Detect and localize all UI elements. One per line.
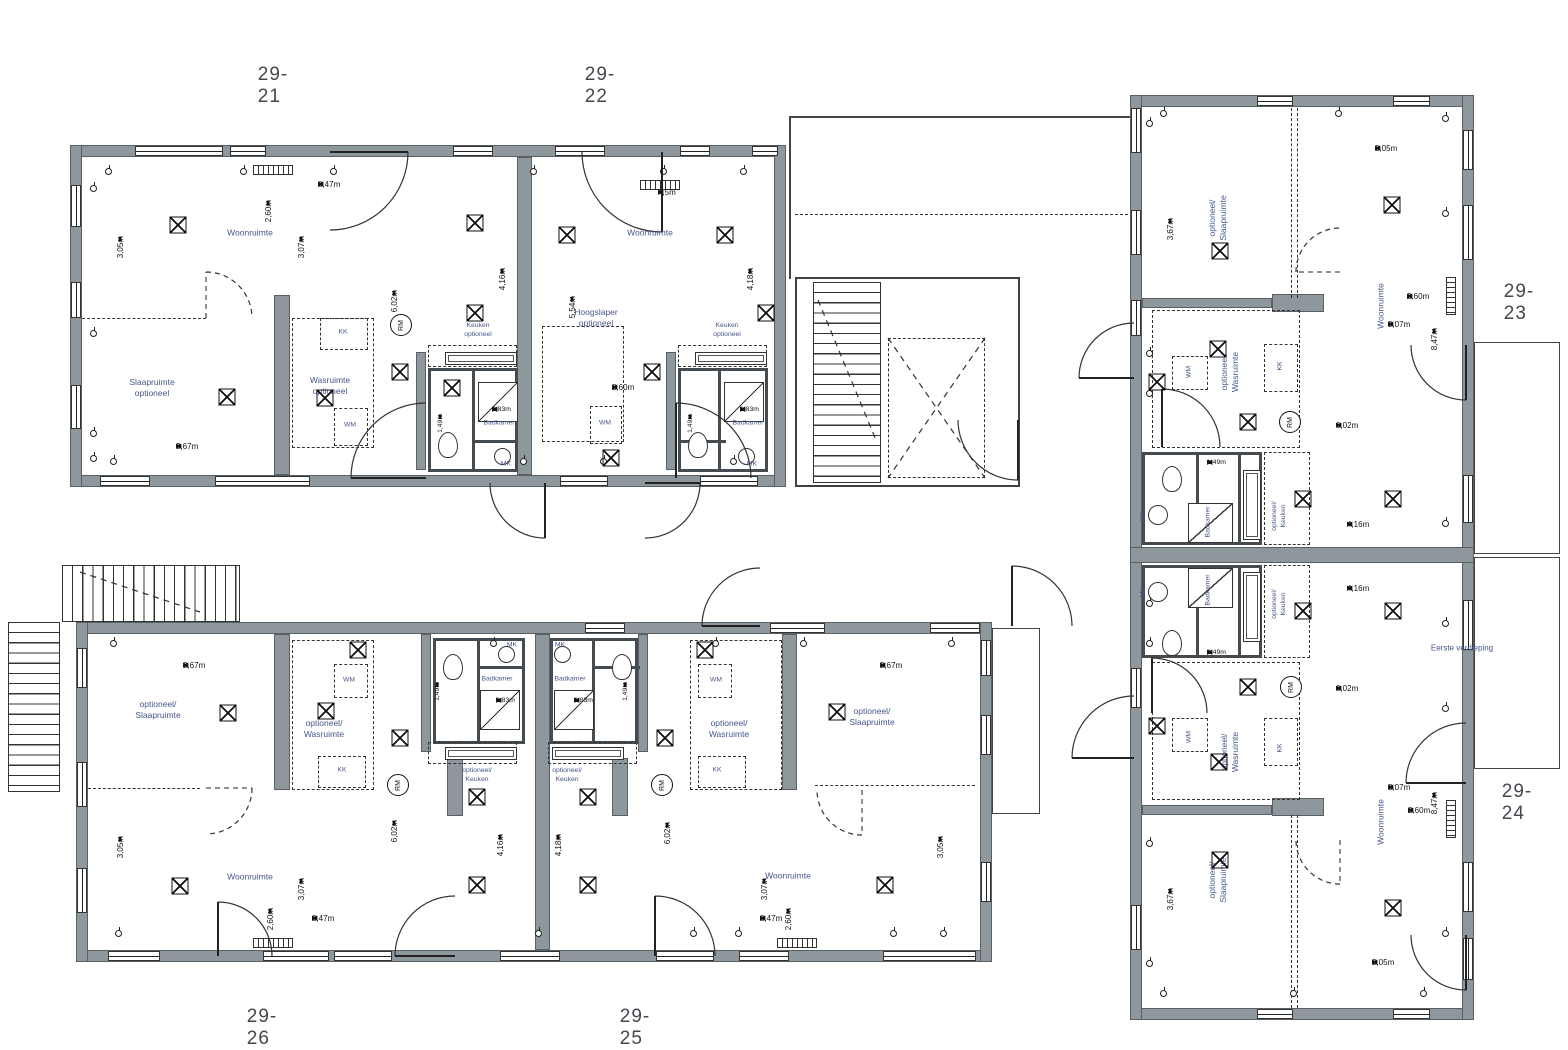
wall-light-icon: [90, 430, 97, 437]
smoke-detector-icon: RM: [387, 774, 409, 796]
dimension-arrow-icon: ▶: [1207, 459, 1212, 466]
wall-light-icon: [110, 458, 117, 465]
room-label: optioneel/ Slaapruimte: [135, 699, 180, 721]
window: [1131, 210, 1141, 255]
smoke-detector-label: RM: [658, 780, 665, 791]
shower-tray: [478, 382, 518, 422]
wall-light-icon: [940, 930, 947, 937]
ventilation-point-icon: [1385, 900, 1402, 917]
window: [1131, 905, 1141, 950]
wall: [782, 634, 797, 790]
wall-light-icon: [1442, 115, 1449, 122]
wall: [666, 352, 676, 470]
ventilation-point-icon: [219, 389, 236, 406]
wall-light-icon: [1290, 990, 1297, 997]
wall-light-icon: [1146, 390, 1153, 397]
dimension-arrow-icon: ▼: [937, 836, 944, 843]
dimension-arrow-icon: ▼: [555, 834, 562, 841]
room-label: optioneel/ Wasruimte: [304, 718, 344, 740]
kitchen-counter: [445, 747, 517, 760]
door-swing: [1406, 723, 1466, 783]
window: [1131, 300, 1141, 336]
ventilation-point-icon: [1211, 754, 1228, 771]
optional-wall-line: [1297, 108, 1298, 298]
wall: [70, 475, 786, 487]
dimension-arrow-icon: ▶: [658, 189, 663, 196]
window: [334, 951, 392, 961]
toilet: [1162, 630, 1182, 656]
dimension-arrow-icon: ▼: [747, 268, 754, 275]
room-label: MK: [1140, 587, 1149, 597]
ventilation-point-icon: [444, 380, 461, 397]
window: [981, 715, 991, 755]
room-label: MK: [747, 461, 757, 470]
window: [1463, 475, 1473, 523]
door-swing: [1012, 566, 1072, 626]
floor-plan-canvas: 29-21WoonruimteSlaapruimte optioneelWasr…: [0, 0, 1568, 1050]
optional-wall-line: [815, 785, 975, 786]
optional-door-swing: [1296, 840, 1340, 884]
dimension-arrow-icon: ▼: [391, 290, 398, 297]
dimension-arrow-icon: ▼: [785, 908, 792, 915]
optional-door-swing: [1296, 228, 1340, 272]
ventilation-point-icon: [1149, 374, 1166, 391]
window: [1131, 668, 1141, 708]
window: [585, 623, 625, 633]
room-label: Hoogslaper optioneel: [574, 307, 617, 329]
wall-light-icon: [1442, 520, 1449, 527]
ventilation-point-icon: [1295, 491, 1312, 508]
dimension-arrow-icon: ▶: [318, 181, 323, 188]
window: [883, 951, 976, 961]
window: [1463, 205, 1473, 260]
ventilation-point-icon: [392, 364, 409, 381]
door-swing: [702, 568, 760, 626]
wall-light-icon: [735, 930, 742, 937]
optional-wall-line: [1297, 815, 1298, 1008]
window: [1257, 1009, 1293, 1019]
partition-wall: [1238, 454, 1241, 543]
window: [215, 476, 310, 486]
kitchen-counter: [1243, 470, 1261, 540]
door-swing: [1079, 323, 1134, 378]
window: [981, 862, 991, 902]
partition-wall: [472, 370, 475, 470]
wall-light-icon: [1160, 110, 1167, 117]
dimension-arrow-icon: ▶: [1207, 649, 1212, 656]
radiator: [777, 938, 817, 948]
optional-wall-line: [795, 214, 1128, 215]
room-label: Keuken optioneel: [464, 322, 492, 340]
unit-number-label: 29-22: [585, 64, 615, 108]
dimension-arrow-icon: ▼: [569, 296, 576, 303]
optional-door-swing: [817, 790, 862, 835]
dimension-arrow-icon: ▶: [312, 915, 317, 922]
wall-light-icon: [1442, 930, 1449, 937]
ventilation-point-icon: [829, 704, 846, 721]
dimension-arrow-icon: ▼: [267, 908, 274, 915]
wall-light-icon: [535, 930, 542, 937]
wall: [612, 758, 628, 816]
dimension-arrow-icon: ▶: [496, 697, 501, 704]
wall-light-icon: [1146, 350, 1153, 357]
smoke-detector-icon: RM: [390, 314, 412, 336]
optional-wall-line: [88, 788, 200, 789]
ventilation-point-icon: [603, 450, 620, 467]
room-label: optioneel/ Keuken: [1271, 501, 1289, 530]
wall-light-icon: [90, 455, 97, 462]
window: [930, 623, 980, 633]
window: [1257, 96, 1293, 106]
window: [71, 185, 81, 227]
dimension-arrow-icon: ▼: [687, 414, 694, 421]
wall-light-icon: [1442, 210, 1449, 217]
window: [1463, 862, 1473, 912]
door-swing: [1072, 696, 1134, 758]
room-label: KK: [712, 767, 721, 776]
window: [1463, 130, 1473, 170]
window: [1463, 938, 1473, 980]
room-label: optioneel/ Keuken: [552, 767, 581, 785]
dimension-arrow-icon: ▶: [760, 915, 765, 922]
dimension-arrow-icon: ▶: [1336, 422, 1341, 429]
ventilation-point-icon: [697, 642, 714, 659]
radiator: [253, 165, 293, 175]
wall-light-icon: [1146, 840, 1153, 847]
ventilation-point-icon: [392, 730, 409, 747]
room-label: Woonruimte: [627, 227, 673, 238]
wall-light-icon: [660, 168, 667, 175]
dimension-arrow-icon: ▶: [1347, 521, 1352, 528]
ventilation-point-icon: [1295, 603, 1312, 620]
smoke-detector-icon: RM: [651, 774, 673, 796]
dimension-arrow-icon: ▼: [117, 236, 124, 243]
dimension-arrow-icon: ▶: [1336, 685, 1341, 692]
dimension-arrow-icon: ▶: [492, 406, 497, 413]
ventilation-point-icon: [1149, 718, 1166, 735]
optional-door-swing: [206, 788, 252, 834]
wall-light-icon: [1442, 620, 1449, 627]
wall: [1142, 298, 1272, 308]
dimension-arrow-icon: ▶: [574, 697, 579, 704]
wall-light-icon: [1146, 640, 1153, 647]
room-label: Badkamer: [484, 420, 515, 429]
toilet: [612, 654, 632, 680]
wall-light-icon: [890, 930, 897, 937]
floor-level-label: Eerste verdieping: [1431, 644, 1493, 653]
ventilation-point-icon: [1384, 197, 1401, 214]
partition-wall: [472, 440, 518, 443]
wall-light-icon: [90, 330, 97, 337]
ventilation-point-icon: [1385, 491, 1402, 508]
ventilation-point-icon: [172, 878, 189, 895]
dimension-arrow-icon: ▶: [1388, 784, 1393, 791]
dimension-arrow-icon: ▼: [391, 820, 398, 827]
window: [1393, 96, 1430, 106]
wall: [774, 145, 786, 487]
ventilation-point-icon: [1212, 243, 1229, 260]
dimension-arrow-icon: ▼: [664, 822, 671, 829]
walkway-line: [789, 118, 791, 279]
window: [752, 146, 778, 156]
ventilation-point-icon: [1385, 603, 1402, 620]
room-label: Slaapruimte optioneel: [129, 377, 174, 399]
door-swing: [1411, 935, 1466, 990]
room-label: optioneel/ Slaapruimte: [1207, 195, 1229, 240]
room-label: KK: [1277, 361, 1286, 370]
wall-light-icon: [110, 640, 117, 647]
wall-light-icon: [490, 640, 497, 647]
wall: [76, 622, 992, 634]
wall-light-icon: [690, 930, 697, 937]
boiler-unit: [1148, 505, 1168, 525]
dimension-arrow-icon: ▼: [499, 268, 506, 275]
window: [77, 762, 87, 807]
ventilation-point-icon: [580, 789, 597, 806]
door-swing: [490, 483, 545, 538]
door-swing: [582, 152, 662, 232]
room-label: WM: [710, 677, 722, 686]
room-label: Badkamer: [1205, 507, 1214, 538]
wall: [1130, 547, 1474, 563]
ventilation-point-icon: [877, 877, 894, 894]
window: [981, 640, 991, 676]
wall-light-icon: [948, 640, 955, 647]
unit-number-label: 29-25: [620, 1006, 650, 1050]
ventilation-point-icon: [467, 215, 484, 232]
wall-light-icon: [1146, 120, 1153, 127]
window: [1131, 108, 1141, 153]
dimension-arrow-icon: ▼: [497, 834, 504, 841]
ventilation-point-icon: [317, 390, 334, 407]
wall-light-icon: [1146, 960, 1153, 967]
kitchen-counter: [1243, 572, 1261, 642]
ventilation-point-icon: [469, 789, 486, 806]
window: [700, 476, 758, 486]
unit-number-label: 29-24: [1502, 781, 1532, 825]
window: [500, 951, 560, 961]
window: [1463, 600, 1473, 650]
kitchen-counter: [695, 352, 767, 365]
room-label: WM: [343, 677, 355, 686]
room-label: Woonruimte: [765, 870, 811, 881]
wall: [1272, 798, 1324, 816]
ventilation-point-icon: [1240, 414, 1257, 431]
wall: [447, 758, 463, 816]
dimension-arrow-icon: ▼: [298, 878, 305, 885]
dimension-arrow-icon: ▼: [622, 682, 629, 689]
dimension-arrow-icon: ▶: [612, 384, 617, 391]
wall-light-icon: [740, 168, 747, 175]
unit-number-label: 29-23: [1504, 281, 1534, 325]
window: [100, 476, 150, 486]
optional-layout-outline: [1264, 718, 1298, 766]
wall: [535, 634, 550, 950]
optional-door-swing: [206, 272, 252, 318]
dimension-arrow-icon: ▼: [298, 236, 305, 243]
room-label: MK: [507, 642, 517, 651]
partition-wall: [477, 666, 523, 669]
wall-light-icon: [530, 168, 537, 175]
optional-wall-line: [82, 318, 206, 319]
room-label: KK: [337, 767, 346, 776]
wall: [416, 352, 426, 470]
door-swing: [645, 483, 700, 538]
ventilation-point-icon: [318, 703, 335, 720]
room-label: Badkamer: [482, 676, 513, 685]
window: [656, 951, 714, 961]
wall-light-icon: [90, 185, 97, 192]
door-swing: [1411, 345, 1466, 400]
balcony: [1474, 557, 1560, 769]
wall: [638, 634, 648, 752]
ventilation-point-icon: [1240, 679, 1257, 696]
wall-light-icon: [1146, 600, 1153, 607]
balcony: [1474, 342, 1560, 554]
room-label: KK: [1277, 743, 1286, 752]
ventilation-point-icon: [1210, 341, 1227, 358]
room-label: MK: [555, 642, 565, 651]
dimension-arrow-icon: ▼: [1431, 328, 1438, 335]
ventilation-point-icon: [469, 877, 486, 894]
window: [453, 146, 493, 156]
room-label: WM: [599, 420, 611, 429]
toilet: [443, 654, 463, 680]
window: [108, 951, 160, 961]
dimension-arrow-icon: ▼: [1167, 218, 1174, 225]
window: [263, 951, 329, 961]
room-label: WM: [1186, 731, 1195, 743]
toilet: [688, 432, 708, 458]
window: [739, 951, 789, 961]
room-label: Keuken optioneel: [713, 322, 741, 340]
window: [680, 146, 710, 156]
window: [230, 146, 266, 156]
room-label: WM: [1186, 366, 1195, 378]
room-label: optioneel/ Wasruimte: [709, 718, 749, 740]
room-label: Badkamer: [1205, 575, 1214, 606]
smoke-detector-label: RM: [394, 780, 401, 791]
room-label: optioneel/ Slaapruimte: [849, 706, 894, 728]
staircase: [8, 622, 60, 792]
dimension-arrow-icon: ▼: [437, 414, 444, 421]
wall-light-icon: [520, 458, 527, 465]
dimension-arrow-icon: ▶: [1388, 321, 1393, 328]
dimension-arrow-icon: ▶: [183, 662, 188, 669]
window: [71, 282, 81, 318]
window: [77, 868, 87, 913]
dimension-arrow-icon: ▶: [1347, 585, 1352, 592]
door-swing: [655, 896, 715, 956]
wall: [421, 634, 431, 752]
staircase: [813, 282, 881, 483]
wall-light-icon: [115, 930, 122, 937]
walkway-line: [789, 116, 1130, 118]
balcony: [992, 628, 1040, 814]
ventilation-point-icon: [717, 227, 734, 244]
room-label: KK: [338, 329, 347, 338]
ventilation-point-icon: [170, 217, 187, 234]
window: [1393, 1009, 1430, 1019]
unit-number-label: 29-26: [247, 1006, 277, 1050]
ventilation-point-icon: [467, 305, 484, 322]
ventilation-point-icon: [644, 364, 661, 381]
dimension-arrow-icon: ▶: [176, 443, 181, 450]
optional-layout-outline: [888, 338, 985, 478]
room-label: Badkamer: [555, 676, 586, 685]
partition-wall: [1238, 567, 1241, 656]
room-label: MK: [501, 461, 511, 470]
unit-number-label: 29-21: [258, 64, 288, 108]
dimension-arrow-icon: ▶: [1408, 807, 1413, 814]
dimension-arrow-icon: ▶: [1375, 145, 1380, 152]
window: [135, 146, 223, 156]
radiator: [1446, 800, 1456, 838]
radiator: [253, 938, 293, 948]
dimension-arrow-icon: ▼: [1431, 792, 1438, 799]
wall-light-icon: [240, 168, 247, 175]
ventilation-point-icon: [350, 642, 367, 659]
room-label: Badkamer: [733, 420, 764, 429]
kitchen-counter: [552, 747, 624, 760]
window: [71, 385, 81, 429]
optional-wall-line: [1291, 815, 1292, 1008]
wall-light-icon: [1160, 990, 1167, 997]
optional-wall-line: [1291, 108, 1292, 298]
wall: [274, 295, 290, 475]
wall: [517, 157, 532, 475]
ventilation-point-icon: [580, 877, 597, 894]
door-swing: [395, 896, 455, 956]
kitchen-counter: [445, 352, 517, 365]
radiator: [1446, 277, 1456, 315]
shower-tray: [724, 382, 764, 422]
smoke-detector-icon: RM: [1279, 411, 1301, 433]
door-swing: [330, 152, 408, 230]
window: [560, 476, 608, 486]
dimension-arrow-icon: ▼: [1167, 888, 1174, 895]
optional-layout-outline: [698, 756, 746, 788]
toilet: [438, 432, 458, 458]
boiler-unit: [1148, 582, 1168, 602]
room-label: Woonruimte: [227, 871, 273, 882]
window: [77, 648, 87, 688]
wall-light-icon: [730, 458, 737, 465]
dimension-arrow-icon: ▶: [1372, 959, 1377, 966]
ventilation-point-icon: [758, 305, 775, 322]
wall-light-icon: [1335, 110, 1342, 117]
window: [555, 146, 605, 156]
ventilation-point-icon: [1212, 852, 1229, 869]
ventilation-point-icon: [657, 730, 674, 747]
staircase: [62, 565, 240, 622]
ventilation-point-icon: [220, 705, 237, 722]
dimension-arrow-icon: ▼: [761, 878, 768, 885]
wall-light-icon: [800, 640, 807, 647]
ventilation-point-icon: [559, 227, 576, 244]
dimension-arrow-icon: ▼: [117, 836, 124, 843]
wall-light-icon: [330, 168, 337, 175]
dimension-arrow-icon: ▶: [1407, 293, 1412, 300]
toilet: [1162, 466, 1182, 492]
smoke-detector-label: RM: [1286, 417, 1293, 428]
dimension-arrow-icon: ▼: [434, 682, 441, 689]
room-label: Woonruimte: [1375, 799, 1386, 845]
wall: [1142, 805, 1272, 815]
room-label: MK: [1140, 511, 1149, 521]
wall: [274, 634, 290, 790]
room-label: Woonruimte: [1375, 283, 1386, 329]
